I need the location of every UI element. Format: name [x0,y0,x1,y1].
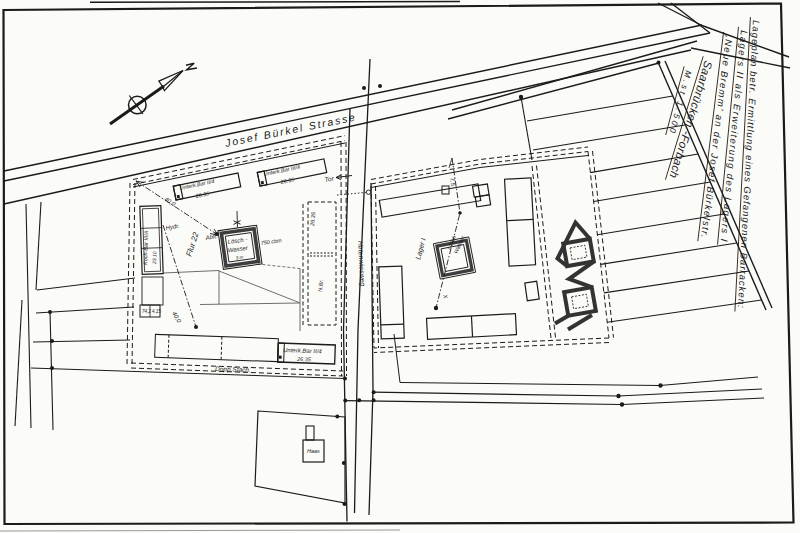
svg-text:40,0: 40,0 [171,311,182,325]
svg-text:Flur 22: Flur 22 [184,231,200,258]
svg-text:Dopp.Stach.: Dopp.Stach. [215,365,251,374]
svg-text:74,2 4,15: 74,2 4,15 [142,309,161,314]
svg-text:Wasser: Wasser [227,245,249,254]
svg-text:N.Br.: N.Br. [317,279,324,292]
svg-text:X: X [442,293,449,300]
svg-text:Hirtenwiesweg: Hirtenwiesweg [356,241,366,287]
svg-text:Unterk.Bar III/4: Unterk.Bar III/4 [263,164,300,177]
svg-text:26.35: 26.35 [279,176,296,185]
svg-text:Unterk.Bar II/4: Unterk.Bar II/4 [179,178,215,191]
svg-text:26.35: 26.35 [194,190,211,199]
svg-text:750 cbm: 750 cbm [260,237,282,246]
svg-text:7,5: 7,5 [449,177,456,187]
svg-text:Tor: Tor [324,174,335,183]
svg-text:26.35: 26.35 [309,211,316,227]
svg-text:Lösch -: Lösch - [227,236,247,245]
svg-text:23.10: 23.10 [151,251,157,265]
svg-text:Lager I: Lager I [414,237,427,260]
svg-text:Abfl.: Abfl. [204,233,218,241]
svg-text:Hydr.: Hydr. [165,223,180,231]
svg-text:3.m: 3.m [235,254,243,260]
svg-text:Koch-Bar III/A: Koch-Bar III/A [142,230,149,265]
svg-text:Unterk.Bar II/4: Unterk.Bar II/4 [283,347,323,354]
svg-text:Haas: Haas [307,448,320,454]
svg-text:26.35: 26.35 [296,356,312,363]
